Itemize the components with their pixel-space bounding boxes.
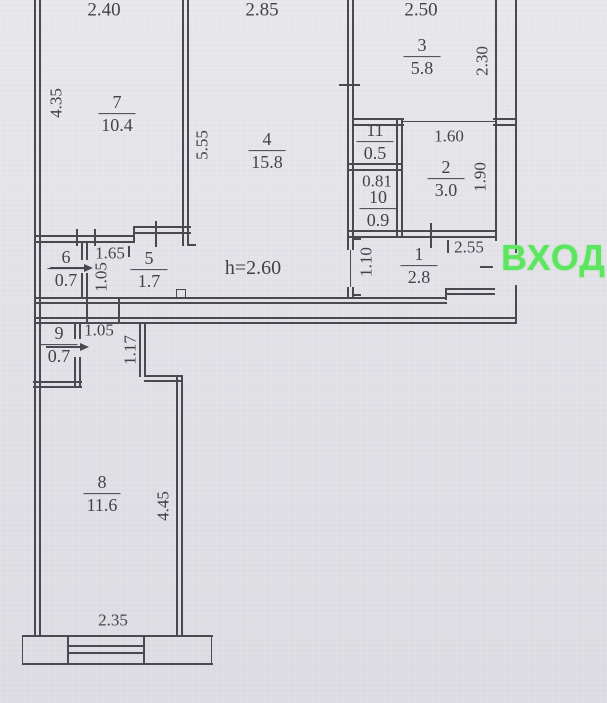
- room-area: 15.8: [251, 151, 283, 172]
- room-label-2: 2 3.0: [428, 158, 465, 200]
- room-number: 8: [84, 473, 121, 494]
- dim-room4-height: 5.55: [194, 130, 211, 160]
- room-number: 3: [404, 36, 441, 57]
- room-label-3: 3 5.8: [404, 36, 441, 78]
- wall-segment: [133, 226, 135, 243]
- wall-segment: [445, 288, 495, 290]
- wall-segment: [118, 299, 120, 323]
- dim-room4-width: 2.85: [245, 1, 278, 20]
- wall-segment: [350, 250, 351, 287]
- room-label-7: 7 10.4: [99, 93, 136, 135]
- room-number: 4: [249, 130, 286, 151]
- dim-room8-window-width: 2.35: [98, 612, 128, 629]
- room-number: 6: [48, 248, 85, 269]
- wall-segment: [33, 381, 82, 383]
- dim-room2-width: 1.60: [434, 128, 464, 145]
- room-label-11: 11 0.5: [357, 121, 394, 163]
- dim-room8-height: 4.45: [155, 491, 172, 521]
- room-area: 3.0: [435, 179, 458, 200]
- dim-room3-height: 2.30: [474, 46, 491, 76]
- dim-room1-width: 2.55: [454, 239, 484, 256]
- wall-segment: [347, 0, 349, 241]
- room-area: 2.8: [408, 266, 431, 287]
- wall-segment: [155, 221, 157, 247]
- dim-room1-opening: 1.10: [358, 247, 375, 277]
- room-area: 10.4: [101, 114, 133, 135]
- room-area: 0.7: [48, 345, 71, 366]
- wall-segment: [493, 124, 517, 126]
- room-label-6: 6 0.7: [48, 248, 85, 290]
- wall-segment: [22, 635, 23, 665]
- room-number: 2: [428, 158, 465, 179]
- dim-hall-depth: 1.05: [93, 262, 110, 292]
- wall-segment: [34, 302, 447, 304]
- room-area: 0.5: [364, 142, 387, 163]
- wall-segment: [187, 244, 196, 246]
- room-number: 9: [41, 324, 78, 345]
- wall-segment: [133, 226, 191, 228]
- room-number: 10: [360, 188, 397, 209]
- room-label-5: 5 1.7: [131, 249, 168, 291]
- wall-segment: [401, 118, 403, 236]
- wall-segment: [447, 240, 449, 253]
- wall-segment: [22, 635, 213, 637]
- room-label-10: 10 0.9: [360, 188, 397, 230]
- wall-segment: [86, 273, 88, 299]
- dim-room2-height: 1.90: [472, 162, 489, 192]
- wall-segment: [133, 232, 191, 234]
- ceiling-height-label: h=2.60: [225, 258, 281, 278]
- room-area: 0.9: [367, 209, 390, 230]
- dim-passage-depth: 1.17: [122, 335, 139, 365]
- wall-segment: [67, 645, 145, 647]
- floor-plan-scan: 2.40 2.85 2.50 4.35 5.55 2.30 1.90 1.05 …: [0, 0, 607, 703]
- dim-room3-width: 2.50: [404, 1, 437, 20]
- wall-segment: [493, 118, 517, 120]
- room-area: 1.7: [138, 270, 161, 291]
- wall-segment: [347, 163, 403, 165]
- room-label-9: 9 0.7: [41, 324, 78, 366]
- dim-room7-width: 2.40: [87, 1, 120, 20]
- wall-segment: [67, 637, 69, 663]
- wall-segment: [34, 317, 517, 319]
- room-label-4: 4 15.8: [249, 130, 286, 172]
- wall-segment: [339, 84, 360, 86]
- room-number: 5: [131, 249, 168, 270]
- wall-segment: [67, 652, 145, 654]
- wall-segment: [144, 322, 146, 377]
- wall-segment: [352, 0, 354, 241]
- wall-segment: [403, 121, 495, 122]
- wall-segment: [22, 663, 213, 665]
- wall-segment: [79, 322, 81, 339]
- wall-segment: [34, 235, 135, 237]
- room-number: 1: [401, 245, 438, 266]
- room-label-8: 8 11.6: [84, 473, 121, 515]
- room-area: 0.7: [55, 269, 78, 290]
- wall-segment: [187, 0, 189, 246]
- wall-segment: [480, 266, 493, 268]
- wall-segment: [143, 637, 145, 663]
- wall-segment: [176, 375, 178, 635]
- wall-segment: [86, 241, 88, 260]
- room-number: 7: [99, 93, 136, 114]
- entrance-label: ВХОД: [501, 240, 606, 276]
- wall-segment: [352, 238, 361, 240]
- room-label-1: 1 2.8: [401, 245, 438, 287]
- dim-room7-height: 4.35: [48, 88, 65, 118]
- wall-segment: [352, 241, 354, 250]
- room-number: 11: [357, 121, 394, 142]
- door-arrow-head-room9: [80, 343, 89, 351]
- wall-segment: [33, 386, 82, 388]
- wall-segment: [211, 635, 212, 665]
- dim-passage-width: 1.05: [84, 322, 114, 339]
- wall-segment: [86, 299, 88, 323]
- room-area: 11.6: [87, 494, 118, 515]
- wall-segment: [495, 0, 497, 241]
- wall-segment: [76, 229, 78, 246]
- wall-segment: [34, 297, 447, 299]
- room-area: 5.8: [411, 57, 434, 78]
- wall-segment: [347, 241, 349, 250]
- dim-hall-width: 1.65: [95, 245, 125, 262]
- wall-segment: [515, 0, 517, 253]
- wall-segment: [347, 230, 495, 232]
- wall-segment: [182, 0, 184, 246]
- wall-segment: [445, 293, 495, 295]
- wall-segment: [181, 375, 183, 635]
- wall-segment: [352, 294, 361, 296]
